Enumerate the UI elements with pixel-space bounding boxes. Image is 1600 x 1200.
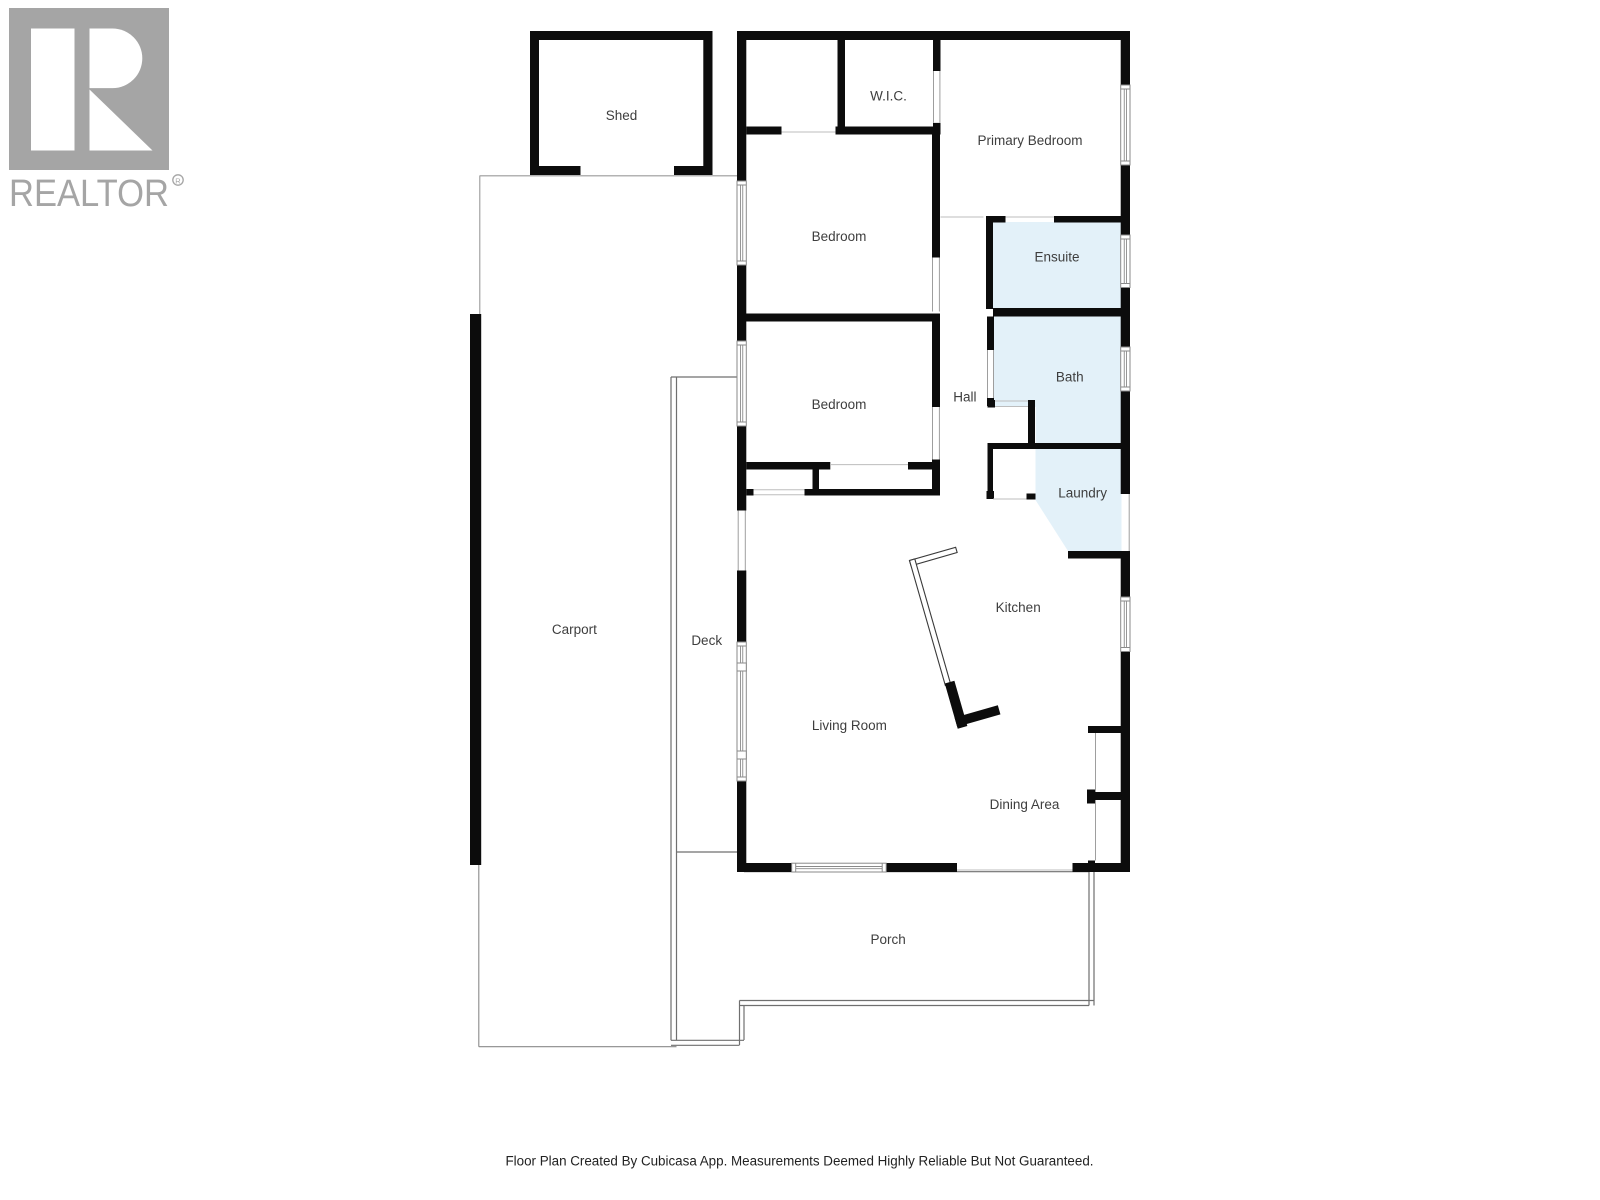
svg-text:Dining Area: Dining Area (990, 797, 1060, 812)
svg-text:Kitchen: Kitchen (996, 600, 1041, 615)
svg-text:Floor Plan Created By Cubicasa: Floor Plan Created By Cubicasa App. Meas… (505, 1154, 1093, 1169)
svg-text:REALTOR: REALTOR (9, 173, 169, 215)
svg-text:Carport: Carport (552, 622, 597, 637)
svg-text:Hall: Hall (953, 390, 976, 405)
svg-text:Laundry: Laundry (1058, 486, 1107, 501)
svg-text:Bedroom: Bedroom (812, 397, 867, 412)
svg-text:W.I.C.: W.I.C. (870, 89, 907, 104)
svg-text:Bath: Bath (1056, 370, 1084, 385)
svg-text:Shed: Shed (606, 108, 638, 123)
svg-text:Deck: Deck (691, 633, 722, 648)
svg-text:Living Room: Living Room (812, 718, 887, 733)
svg-text:R: R (175, 177, 181, 186)
svg-text:Primary Bedroom: Primary Bedroom (977, 133, 1082, 148)
svg-text:Ensuite: Ensuite (1034, 250, 1079, 265)
svg-text:Porch: Porch (871, 932, 906, 947)
svg-text:Bedroom: Bedroom (812, 229, 867, 244)
